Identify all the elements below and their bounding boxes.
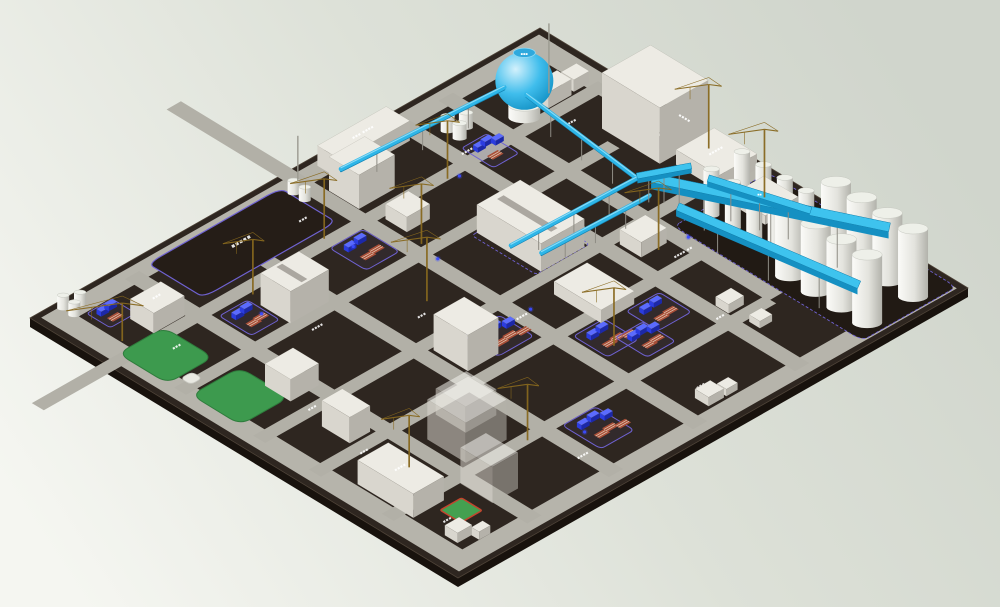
- beam-label: ▪▪: [757, 192, 762, 196]
- tank-trio-west: [57, 293, 69, 310]
- 3d-viewport[interactable]: ▪▪▪ ▪▪▪▪▪▪▪▪▪▪▪▪▪▪▪ ▪▪▪▪▪▪▪▪▪▪▪▪▪▪▪▪▪▪▪▪…: [0, 0, 1000, 607]
- big-silo: [898, 223, 928, 302]
- tank-trio-north: [453, 121, 467, 141]
- site-3d-render: ▪▪▪ ▪▪▪▪▪▪▪▪▪▪▪▪▪▪▪ ▪▪▪▪▪▪▪▪▪▪▪▪▪▪▪▪▪▪▪▪…: [0, 0, 1000, 607]
- gas-sphere-label: ▪▪▪: [521, 52, 529, 56]
- tank-pair-north: [299, 185, 311, 202]
